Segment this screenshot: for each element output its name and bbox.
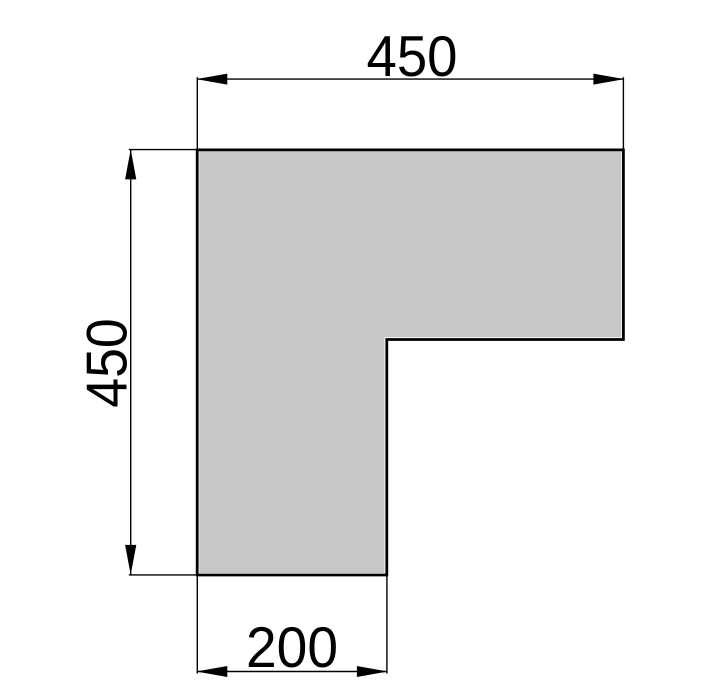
svg-text:200: 200 bbox=[246, 616, 338, 680]
svg-text:450: 450 bbox=[367, 25, 458, 89]
svg-text:450: 450 bbox=[75, 318, 139, 408]
